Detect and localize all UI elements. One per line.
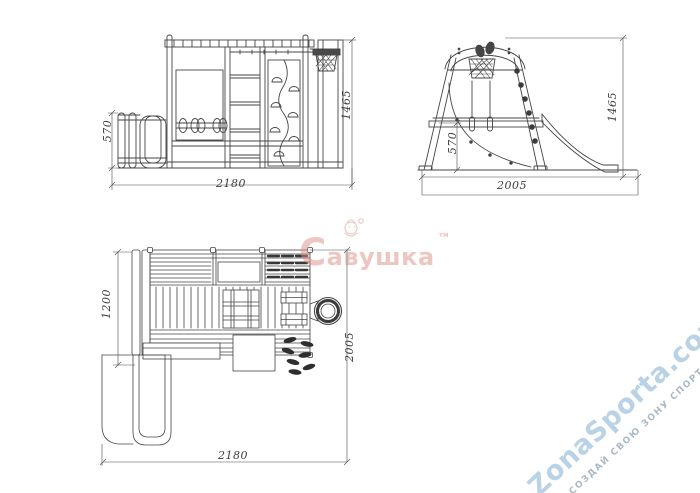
climbing-wall <box>268 60 300 166</box>
technical-drawing-sheet: 570 2180 1465 570 2005 1465 1200 2005 21… <box>0 0 700 493</box>
plan-dim-depth-frame: 1200 <box>100 279 114 329</box>
plan-dim-width: 2180 <box>203 449 263 463</box>
gym-rings <box>470 81 493 131</box>
cross-beams <box>167 141 343 168</box>
brand-watermark: Савушка тм <box>299 231 435 274</box>
basketball-hoop-top <box>310 298 342 325</box>
ladder <box>225 47 265 168</box>
frame-posts <box>167 35 308 168</box>
side-dim-height-total: 1465 <box>606 77 620 137</box>
climbing-rope <box>279 60 289 166</box>
front-dim-height-total: 1465 <box>340 75 354 135</box>
side-dim-height-platform: 570 <box>446 123 460 163</box>
panel-blank <box>218 262 260 282</box>
climbing-holds <box>514 68 538 144</box>
footprint-logo-cutout <box>485 41 496 55</box>
attached-slide-end <box>118 113 167 168</box>
climbing-holds <box>270 78 299 157</box>
panel-blank <box>233 335 275 371</box>
plan-view-drawing <box>85 240 365 470</box>
basketball-hoop <box>310 49 340 71</box>
side-dim-width: 2005 <box>482 179 542 193</box>
front-view-drawing <box>70 25 370 200</box>
monkey-bar-beam <box>165 40 314 54</box>
brand-trademark-mark: тм <box>439 231 449 239</box>
abacus-beads-bar <box>176 119 227 133</box>
side-wall-planks <box>132 250 150 355</box>
side-panel <box>176 70 223 140</box>
ladder-top <box>223 290 259 328</box>
front-dim-width: 2180 <box>201 177 261 191</box>
front-dim-height-slide: 570 <box>101 111 115 151</box>
slide-top <box>102 355 171 445</box>
brand-mascot-icon <box>336 215 370 247</box>
a-frame-header <box>445 41 525 71</box>
basketball-net <box>469 59 495 78</box>
bench-board <box>143 343 220 359</box>
plan-dim-depth-total: 2005 <box>343 317 357 377</box>
